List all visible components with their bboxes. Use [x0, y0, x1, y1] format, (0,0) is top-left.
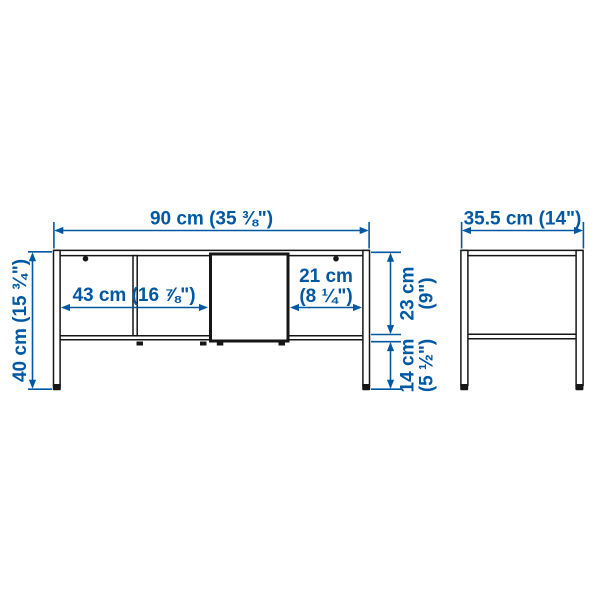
- door-opening-label-line1: 21 cm: [299, 266, 353, 287]
- front-height-label: 40 cm (15 ¾"): [10, 259, 31, 382]
- arrowhead-right-icon: [353, 304, 362, 311]
- front-width-dimension: 90 cm (35 ⅜"): [54, 209, 369, 249]
- dimension-diagram: 90 cm (35 ⅜") 35.5 cm (14") 40 cm (15 ¾"…: [0, 0, 600, 600]
- inner-width-label: 43 cm (16 ⅞"): [72, 285, 195, 306]
- arrowhead-down-icon: [387, 325, 394, 334]
- front-width-label: 90 cm (35 ⅜"): [150, 209, 273, 230]
- arrowhead-left-icon: [61, 304, 70, 311]
- side-depth-label: 35.5 cm (14"): [464, 209, 582, 230]
- shelf-tab-1: [137, 342, 144, 346]
- leg-clearance-dimension: 14 cm (5 ½"): [371, 339, 438, 393]
- side-right-leg: [576, 250, 583, 385]
- inner-width-dimension: 43 cm (16 ⅞"): [61, 285, 208, 311]
- side-left-leg: [461, 250, 468, 385]
- front-right-foot: [362, 384, 370, 390]
- arrowhead-up-icon: [387, 342, 394, 351]
- front-left-foot: [53, 384, 61, 390]
- leg-clearance-label-line2: (5 ½"): [417, 339, 438, 392]
- diagram-svg: 90 cm (35 ⅜") 35.5 cm (14") 40 cm (15 ¾"…: [0, 0, 600, 600]
- side-view: [460, 250, 583, 390]
- arrowhead-down-icon: [387, 380, 394, 389]
- arrowhead-left-icon: [54, 227, 63, 234]
- arrowhead-left-icon: [290, 304, 299, 311]
- door-opening-label-line2: (8 ¼"): [299, 286, 352, 307]
- front-height-dimension: 40 cm (15 ¾"): [10, 252, 52, 389]
- shelf-tab-4: [279, 342, 286, 346]
- upper-section-dimension: 23 cm (9"): [371, 252, 438, 334]
- shelf-tab-2: [200, 342, 207, 346]
- side-depth-dimension: 35.5 cm (14"): [462, 209, 584, 249]
- shelf-tab-3: [217, 342, 224, 346]
- front-left-leg: [54, 250, 61, 385]
- front-door-panel: [211, 254, 289, 341]
- upper-section-label-line1: 23 cm: [398, 267, 419, 321]
- left-screw-hole-icon: [83, 256, 89, 262]
- upper-section-label-line2: (9"): [417, 277, 438, 309]
- leg-clearance-label-line1: 14 cm: [398, 339, 419, 393]
- right-screw-hole-icon: [333, 256, 339, 262]
- arrowhead-up-icon: [387, 253, 394, 262]
- arrowhead-right-icon: [360, 227, 369, 234]
- side-left-foot: [460, 384, 468, 390]
- arrowhead-right-icon: [199, 304, 208, 311]
- front-right-leg: [363, 250, 370, 385]
- side-right-foot: [575, 384, 583, 390]
- door-opening-dimension: 21 cm (8 ¼"): [290, 266, 362, 311]
